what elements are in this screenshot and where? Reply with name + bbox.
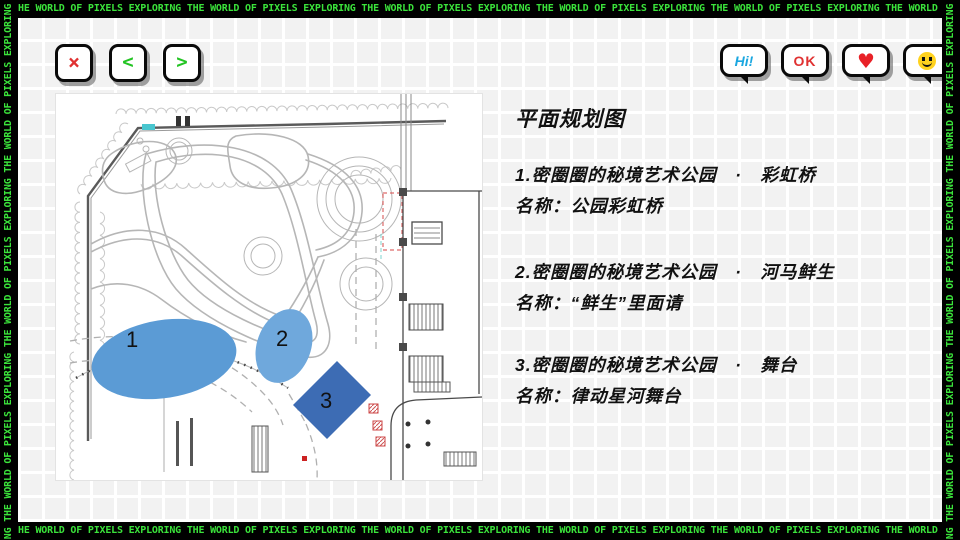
ticker-text: EXPLORING THE WORLD OF PIXELS EXPLORING … <box>18 0 942 18</box>
ticker-bar-right: EXPLORING THE WORLD OF PIXELS EXPLORING … <box>942 0 960 540</box>
page-title: 平面规划图 <box>515 103 625 133</box>
prev-button[interactable]: < <box>109 44 147 82</box>
ticker-text: EXPLORING THE WORLD OF PIXELS EXPLORING … <box>942 0 960 540</box>
venue-1-shape <box>86 309 242 409</box>
smiley-icon <box>918 52 936 70</box>
ticker-bar-top: EXPLORING THE WORLD OF PIXELS EXPLORING … <box>18 0 942 18</box>
venue-entry-2-name: 2.密圈圈的秘境艺术公园 · 河马鲜生 <box>515 257 834 288</box>
ticker-bar-bottom: EXPLORING THE WORLD OF PIXELS EXPLORING … <box>18 522 942 540</box>
hi-bubble-button[interactable]: Hi! <box>720 44 768 77</box>
venue-entry-3-name: 3.密圈圈的秘境艺术公园 · 舞台 <box>515 350 797 381</box>
close-icon: × <box>68 50 80 74</box>
venue-entry-3-alias: 名称：律动星河舞台 <box>515 381 797 412</box>
heart-icon: ♥ <box>857 52 875 70</box>
ok-bubble-button[interactable]: OK <box>781 44 829 77</box>
reaction-bubbles: Hi! OK ♥ <box>720 44 951 77</box>
next-button[interactable]: > <box>163 44 201 82</box>
venue-entry-1: 1.密圈圈的秘境艺术公园 · 彩虹桥 名称：公园彩虹桥 <box>515 160 816 222</box>
ticker-bar-left: EXPLORING THE WORLD OF PIXELS EXPLORING … <box>0 0 18 540</box>
chevron-right-icon: > <box>176 51 187 73</box>
venue-entry-2: 2.密圈圈的秘境艺术公园 · 河马鲜生 名称：“鲜生”里面请 <box>515 257 834 319</box>
close-button[interactable]: × <box>55 44 93 82</box>
heart-bubble-button[interactable]: ♥ <box>842 44 890 77</box>
nav-buttons: × < > <box>55 44 201 82</box>
venue-entry-2-alias: 名称：“鲜生”里面请 <box>515 288 834 319</box>
venue-entry-1-alias: 名称：公园彩虹桥 <box>515 191 816 222</box>
venue-1-label: 1 <box>126 327 138 352</box>
hi-label: Hi! <box>735 53 754 69</box>
ticker-text: EXPLORING THE WORLD OF PIXELS EXPLORING … <box>18 522 942 540</box>
venue-2-label: 2 <box>276 326 288 351</box>
chevron-left-icon: < <box>122 51 133 73</box>
venue-3-label: 3 <box>320 388 332 413</box>
venue-entry-3: 3.密圈圈的秘境艺术公园 · 舞台 名称：律动星河舞台 <box>515 350 797 412</box>
ticker-text: EXPLORING THE WORLD OF PIXELS EXPLORING … <box>0 0 18 540</box>
site-plan-image: 1 2 3 <box>55 93 483 481</box>
site-plan-svg: 1 2 3 <box>56 94 482 480</box>
ok-label: OK <box>794 53 817 69</box>
venue-entry-1-name: 1.密圈圈的秘境艺术公园 · 彩虹桥 <box>515 160 816 191</box>
